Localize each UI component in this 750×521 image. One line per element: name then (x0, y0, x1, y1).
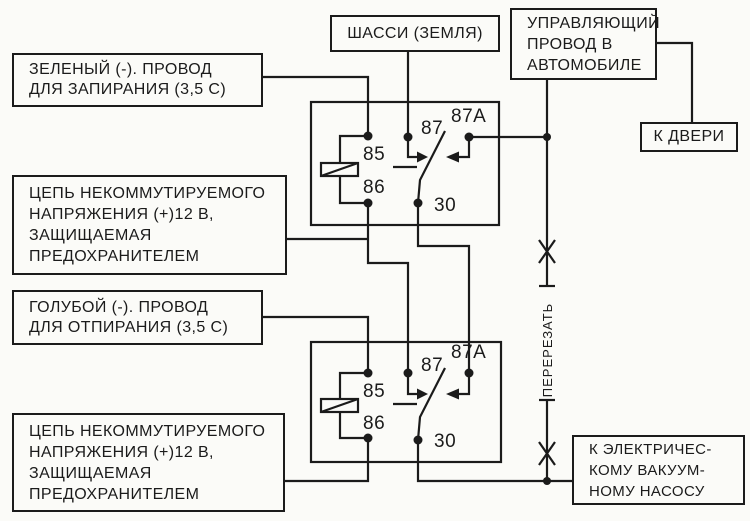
relay1-87a-dot (465, 133, 474, 142)
relay1-terminal-86-label: 86 (363, 178, 385, 197)
relay1-85-dot (364, 132, 373, 141)
relay1-switch-blade (418, 131, 445, 203)
label-line: ПРЕДОХРАНИТЕЛЕМ (29, 246, 285, 267)
relay1-terminal-30-label: 30 (434, 196, 456, 215)
relay1-87-dot (404, 133, 413, 142)
label-box-control-wire: УПРАВЛЯЮЩИЙ ПРОВОД В АВТОМОБИЛЕ (510, 8, 657, 80)
relay1-86-dot (364, 199, 373, 208)
relay2-30-dot (414, 436, 423, 445)
label-line: ДЛЯ ЗАПИРАНИЯ (3,5 С) (29, 80, 261, 100)
relay2-85-dot (364, 369, 373, 378)
label-line: К ДВЕРИ (654, 127, 725, 147)
wire-blue-to-relay2-85 (263, 317, 368, 373)
label-line: ГОЛУБОЙ (-). ПРОВОД (29, 298, 261, 318)
label-line: ЗАЩИЩАЕМАЯ (29, 225, 285, 246)
label-line: ДЛЯ ОТПИРАНИЯ (3,5 С) (29, 318, 261, 338)
wire-fused-bottom-to-86 (285, 438, 368, 481)
wire-86-to-relay2-87 (368, 203, 408, 373)
relay2-terminal-86-label: 86 (363, 414, 385, 433)
cut-here-label: ПЕРЕРЕЗАТЬ (539, 290, 557, 410)
relay1-terminal-87a-label: 87A (451, 107, 486, 126)
relay2-terminal-87a-label: 87A (451, 343, 486, 362)
relay2-terminal-30-label: 30 (434, 432, 456, 451)
relay1-30-dot (414, 199, 423, 208)
label-line: ЗАЩИЩАЕМАЯ (29, 463, 283, 484)
label-line: НОМУ НАСОСУ (589, 481, 743, 502)
relay2-coil-diagonal (321, 399, 358, 412)
junction-dot-control-top (543, 133, 551, 141)
label-box-fused-circuit-top: ЦЕПЬ НЕКОММУТИРУЕМОГО НАПРЯЖЕНИЯ (+)12 В… (12, 175, 287, 275)
label-line: УПРАВЛЯЮЩИЙ (527, 13, 655, 34)
label-line: ЗЕЛЕНЫЙ (-). ПРОВОД (29, 60, 261, 80)
label-box-blue-unlock-wire: ГОЛУБОЙ (-). ПРОВОД ДЛЯ ОТПИРАНИЯ (3,5 С… (12, 290, 263, 345)
relay1-87-arrow-icon (417, 152, 428, 163)
relay2-switch-blade (418, 368, 445, 440)
wire-green-to-85 (263, 77, 368, 136)
relay1-terminal-87-label: 87 (421, 119, 443, 138)
label-line: К ЭЛЕКТРИЧЕС- (589, 439, 743, 460)
label-line: ШАССИ (ЗЕМЛЯ) (347, 24, 483, 44)
label-line: АВТОМОБИЛЕ (527, 55, 655, 76)
label-line: КОМУ ВАКУУМ- (589, 460, 743, 481)
label-line: ПРЕДОХРАНИТЕЛЕМ (29, 484, 283, 505)
label-box-to-vacuum-pump: К ЭЛЕКТРИЧЕС- КОМУ ВАКУУМ- НОМУ НАСОСУ (572, 435, 745, 505)
relay2-87a-dot (465, 369, 474, 378)
wire-control-to-door (657, 43, 692, 122)
label-box-to-door: К ДВЕРИ (640, 122, 738, 152)
relay1-87a-arrow-icon (446, 152, 459, 163)
relay2-86-dot (364, 434, 373, 443)
relay2-87-arrow-icon (417, 389, 428, 400)
label-box-chassis-ground: ШАССИ (ЗЕМЛЯ) (330, 15, 500, 52)
label-line: НАПРЯЖЕНИЯ (+)12 В, (29, 442, 283, 463)
relay2-terminal-85-label: 85 (363, 382, 385, 401)
relay2-87a-arrow-icon (446, 389, 459, 400)
wiring-diagram: ШАССИ (ЗЕМЛЯ) УПРАВЛЯЮЩИЙ ПРОВОД В АВТОМ… (0, 0, 750, 521)
label-box-green-lock-wire: ЗЕЛЕНЫЙ (-). ПРОВОД ДЛЯ ЗАПИРАНИЯ (3,5 С… (12, 53, 263, 107)
label-line: ПРОВОД В (527, 34, 655, 55)
label-line: ЦЕПЬ НЕКОММУТИРУЕМОГО (29, 183, 285, 204)
junction-dot-control-bottom (543, 477, 551, 485)
label-line: НАПРЯЖЕНИЯ (+)12 В, (29, 204, 285, 225)
label-box-fused-circuit-bottom: ЦЕПЬ НЕКОММУТИРУЕМОГО НАПРЯЖЕНИЯ (+)12 В… (12, 413, 285, 512)
relay1-coil-diagonal (321, 163, 358, 176)
relay2-terminal-87-label: 87 (421, 356, 443, 375)
relay1-terminal-85-label: 85 (363, 145, 385, 164)
label-line: ЦЕПЬ НЕКОММУТИРУЕМОГО (29, 421, 283, 442)
relay2-87-dot (404, 369, 413, 378)
